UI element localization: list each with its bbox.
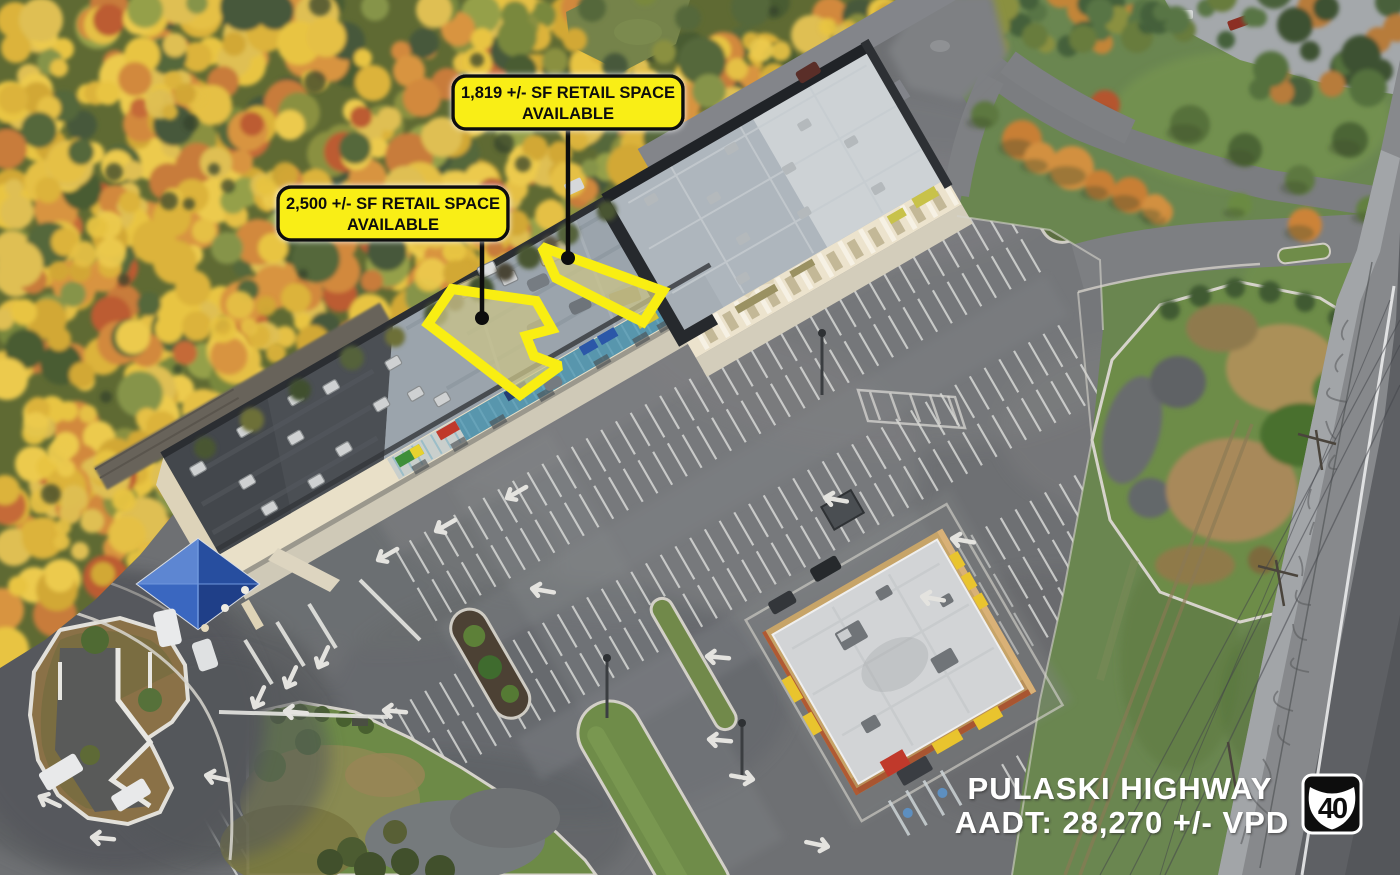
- svg-text:AADT: 28,270 +/- VPD: AADT: 28,270 +/- VPD: [955, 805, 1289, 840]
- svg-text:40: 40: [1318, 793, 1347, 825]
- svg-text:2,500 +/- SF RETAIL SPACE: 2,500 +/- SF RETAIL SPACE: [286, 195, 500, 213]
- svg-text:AVAILABLE: AVAILABLE: [347, 216, 439, 234]
- svg-text:PULASKI HIGHWAY: PULASKI HIGHWAY: [968, 771, 1273, 806]
- svg-text:1,819 +/- SF RETAIL SPACE: 1,819 +/- SF RETAIL SPACE: [461, 84, 675, 102]
- svg-text:AVAILABLE: AVAILABLE: [522, 105, 614, 123]
